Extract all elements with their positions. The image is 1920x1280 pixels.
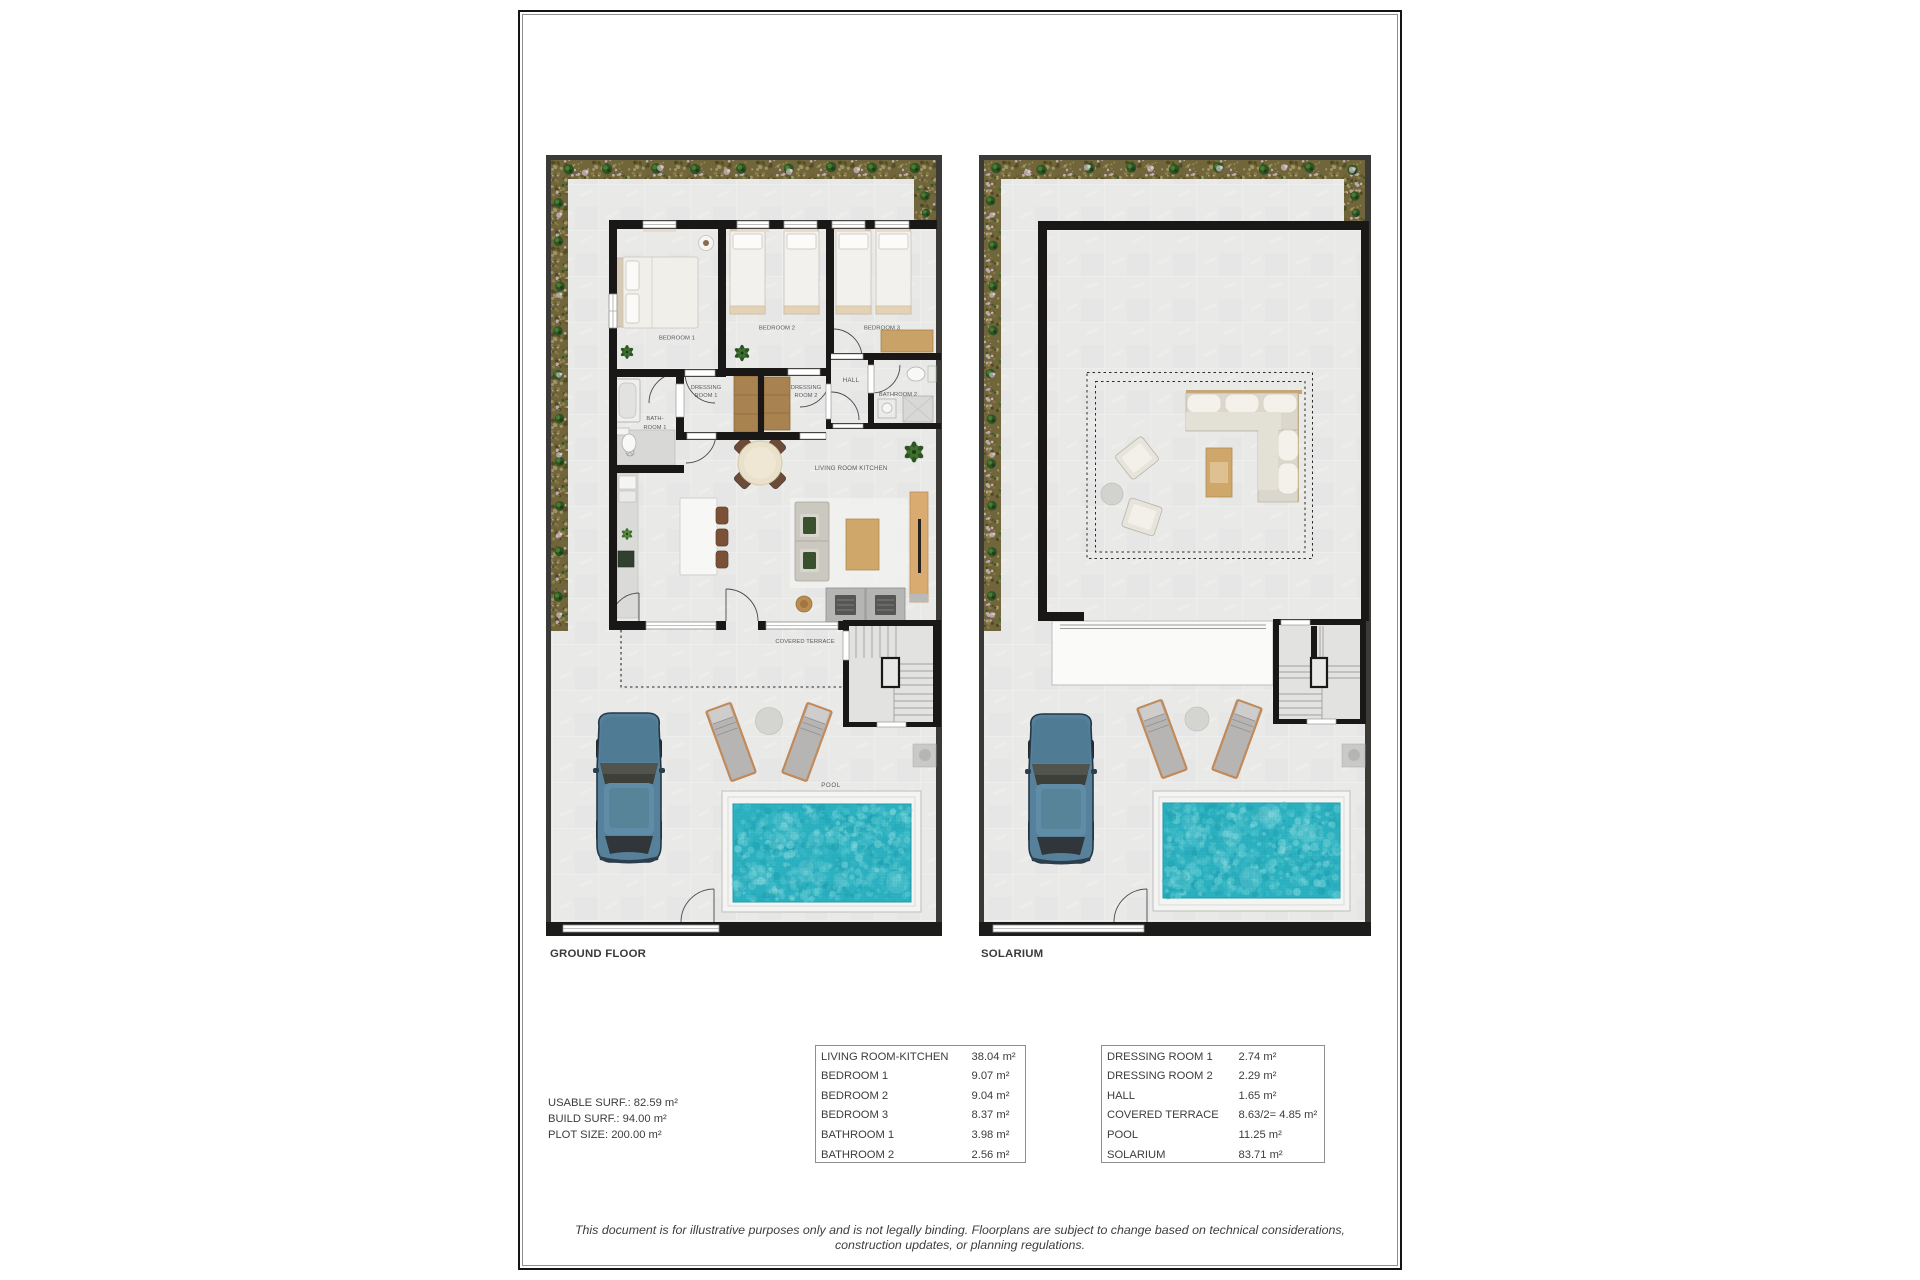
svg-text:BATH-: BATH-: [646, 416, 663, 422]
svg-text:ROOM 1: ROOM 1: [643, 425, 666, 431]
svg-text:DRESSING: DRESSING: [691, 385, 722, 391]
svg-text:COVERED TERRACE: COVERED TERRACE: [775, 639, 834, 645]
svg-text:BEDROOM 3: BEDROOM 3: [864, 326, 901, 332]
svg-text:ROOM 1: ROOM 1: [694, 393, 717, 399]
svg-text:BEDROOM 1: BEDROOM 1: [659, 336, 695, 342]
svg-text:POOL: POOL: [821, 782, 841, 789]
svg-text:ROOM 2: ROOM 2: [794, 393, 817, 399]
svg-text:DRESSING: DRESSING: [791, 385, 822, 391]
svg-text:HALL: HALL: [843, 377, 860, 384]
svg-text:BEDROOM 2: BEDROOM 2: [759, 326, 795, 332]
svg-text:LIVING ROOM KITCHEN: LIVING ROOM KITCHEN: [815, 465, 888, 472]
svg-text:BATHROOM 2: BATHROOM 2: [879, 392, 917, 398]
